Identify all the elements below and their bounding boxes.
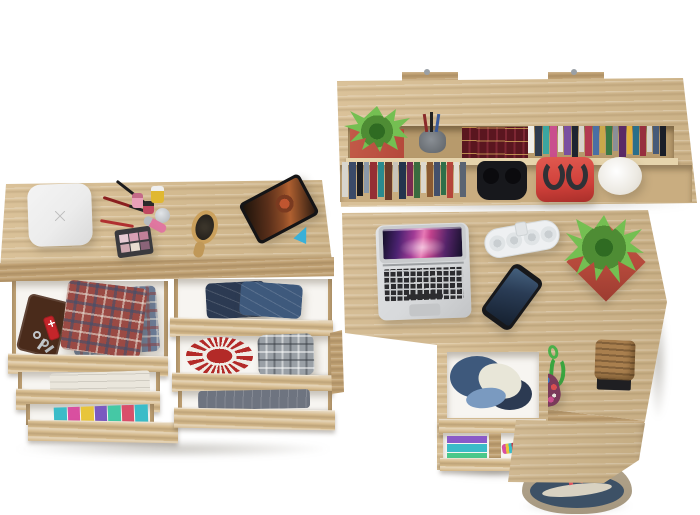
stripe-item: [619, 126, 626, 157]
handbag-handle-icon: [566, 160, 588, 190]
stripe-item: [558, 126, 563, 152]
stripe-item: [535, 126, 542, 156]
laptop: [375, 222, 471, 320]
strip-clip: [514, 221, 528, 237]
jewelry-box-logo-icon: [55, 211, 65, 221]
stripe-item: [441, 162, 446, 195]
stripe-item: [447, 162, 453, 198]
handbag-handle-icon: [543, 160, 565, 190]
pedestal-clothes-folded: [447, 436, 487, 460]
stripe-item: [593, 126, 599, 155]
stripe-item: [600, 126, 605, 153]
drawer-front-left-3: [28, 420, 178, 444]
pedestal-divider: [489, 433, 501, 461]
stripe-item: [370, 162, 377, 199]
stripe-item: [378, 162, 384, 197]
wicker-basket: [594, 339, 635, 380]
red-doily: [186, 337, 253, 375]
stripe-item: [139, 231, 149, 240]
eyeshadow-pans: [116, 228, 152, 256]
gray-jeans-folded: [198, 389, 310, 410]
stripe-item: [130, 243, 140, 252]
stripe-item: [633, 126, 639, 155]
headphone-earcup-icon: [483, 168, 499, 184]
bowl-plant: [606, 161, 634, 183]
stripe-item: [653, 126, 659, 154]
stripe-item: [427, 162, 433, 197]
stripe-item: [407, 162, 413, 196]
stripe-item: [647, 126, 652, 152]
stripe-item: [393, 162, 398, 192]
stripe-item: [349, 162, 356, 199]
stripe-item: [421, 162, 426, 193]
stripe-item: [454, 162, 459, 193]
stripe-item: [640, 126, 646, 156]
stripe-item: [129, 232, 139, 241]
nail-polish-yellow: [151, 186, 164, 203]
stripe-item: [447, 436, 487, 443]
stripe-item: [140, 241, 150, 250]
stripe-item: [528, 126, 534, 153]
wall-shelf: [333, 66, 700, 216]
nail-polish-red: [143, 201, 154, 214]
stripe-item: [414, 162, 420, 198]
denim-pile: [450, 354, 536, 414]
pen-cup: [419, 130, 446, 153]
stripe-item: [606, 126, 612, 155]
stripe-item: [550, 126, 557, 157]
stripe-item: [579, 126, 584, 152]
stripe-item: [613, 126, 618, 151]
stripe-item: [364, 162, 369, 193]
stripe-item: [627, 126, 632, 154]
mount-screw-icon: [424, 69, 430, 75]
key-icon: [33, 331, 41, 339]
plaid-shirt-folded: [60, 279, 148, 358]
stripe-item: [543, 126, 549, 154]
jeans-folded: [239, 281, 303, 319]
stripe-item: [660, 126, 666, 156]
stripe-item: [572, 126, 578, 157]
desk-left-leg: [329, 330, 345, 394]
stripe-item: [585, 126, 592, 156]
stripe-item: [385, 162, 392, 200]
stripe-item: [460, 162, 466, 197]
drawer-front-right-3: [174, 408, 335, 431]
laptop-screen: [383, 227, 463, 260]
headphone-earcup-icon: [505, 168, 521, 184]
stripe-item: [564, 126, 571, 155]
stripe-item: [119, 234, 129, 243]
socket-icon: [488, 234, 507, 253]
book-row-lower: [342, 162, 470, 201]
dresser: [0, 178, 346, 453]
book-row-upper: [528, 126, 672, 158]
stripe-item: [357, 162, 363, 196]
stripe-item: [447, 444, 487, 451]
socket-icon: [539, 225, 558, 244]
gray-plaid-shirt: [257, 333, 314, 377]
encyclopedia-set: [462, 127, 528, 158]
stripe-item: [120, 244, 130, 253]
stripe-item: [434, 162, 440, 196]
pen-icon: [430, 112, 433, 132]
product-render: [0, 0, 700, 515]
hairbrush-handle: [192, 241, 206, 259]
stripe-item: [399, 162, 406, 199]
keys: [32, 330, 58, 356]
perfume-bottle: [132, 193, 143, 208]
laptop-trackpad: [409, 303, 440, 316]
mount-screw-icon: [571, 69, 577, 75]
